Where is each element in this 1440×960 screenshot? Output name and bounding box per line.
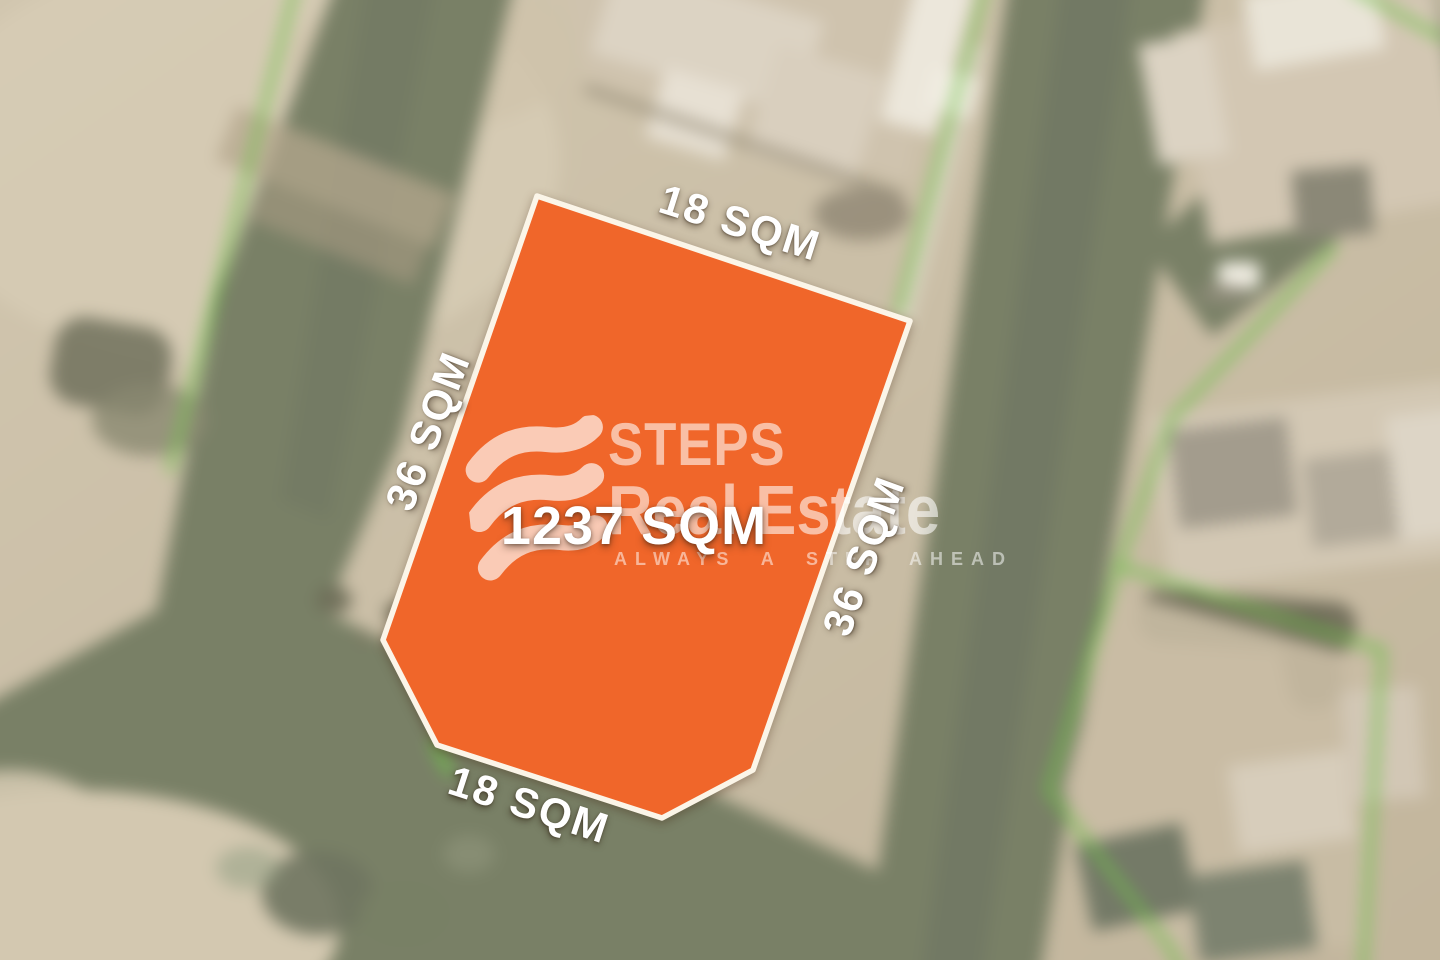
brand-name-steps: STEPS xyxy=(608,415,786,475)
plot-map-image: STEPS Real Estate ALWAYS A STEP AHEAD 18… xyxy=(0,0,1440,960)
plot-area-label: 1237 SQM xyxy=(501,495,767,557)
